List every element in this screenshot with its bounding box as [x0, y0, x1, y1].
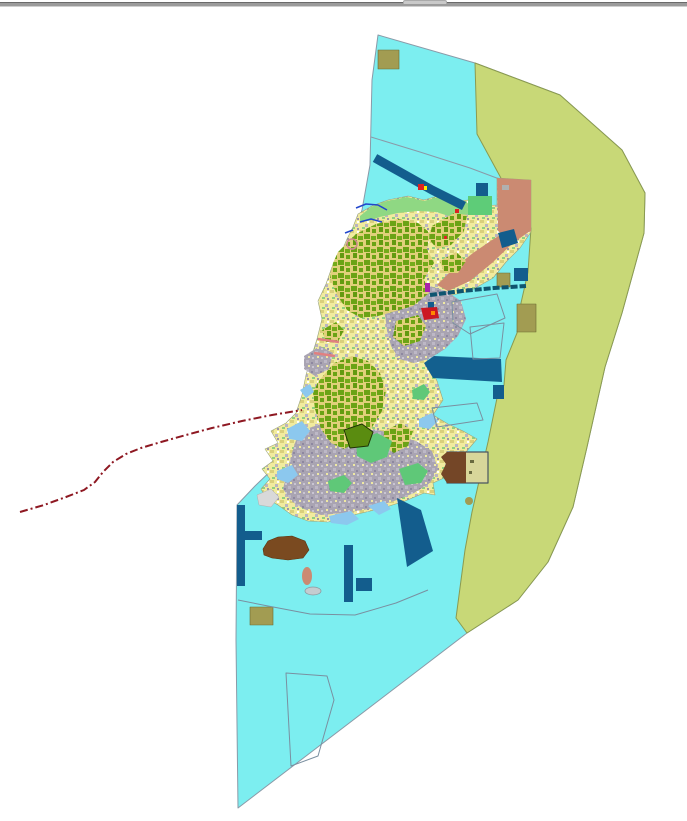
navy-parcel-northeast: [476, 183, 488, 196]
gray-islet: [305, 587, 321, 595]
crimson-port-marker: [421, 307, 439, 320]
navy-square-bay: [493, 385, 504, 399]
red-marker-north: [418, 184, 424, 190]
navy-square-south: [356, 578, 372, 591]
navy-breakwater-arm: [245, 531, 262, 540]
navy-dock-tick: [428, 302, 434, 308]
splitter-handle[interactable]: [403, 0, 447, 4]
red-marker-northeast-2: [444, 236, 447, 239]
magenta-marker: [425, 283, 430, 292]
gray-parcel-northeast: [502, 185, 509, 190]
red-marker-northeast-1: [455, 209, 459, 213]
bordered-compound-brown-half: [441, 452, 466, 483]
navy-strip-south: [344, 545, 353, 602]
orange-dot-marker: [431, 311, 435, 315]
khaki-rect-south: [250, 607, 273, 625]
navy-square-offshore: [514, 268, 528, 281]
khaki-parcel-top: [378, 50, 399, 69]
map-viewport[interactable]: [0, 0, 687, 821]
map-canvas[interactable]: [0, 0, 687, 821]
khaki-dot: [465, 497, 473, 505]
harbor-bay-polygon: [424, 356, 502, 382]
map-application-window: [0, 0, 687, 821]
khaki-rect-boundary: [517, 304, 536, 332]
salmon-islet: [302, 567, 312, 585]
compound-mark-1: [470, 460, 474, 463]
bright-green-parcel: [468, 196, 492, 215]
khaki-square-offshore: [497, 273, 510, 287]
window-divider: [0, 2, 687, 7]
compound-mark-2: [469, 471, 472, 474]
yellow-marker-north: [424, 186, 427, 190]
navy-breakwater-vertical: [237, 505, 245, 586]
